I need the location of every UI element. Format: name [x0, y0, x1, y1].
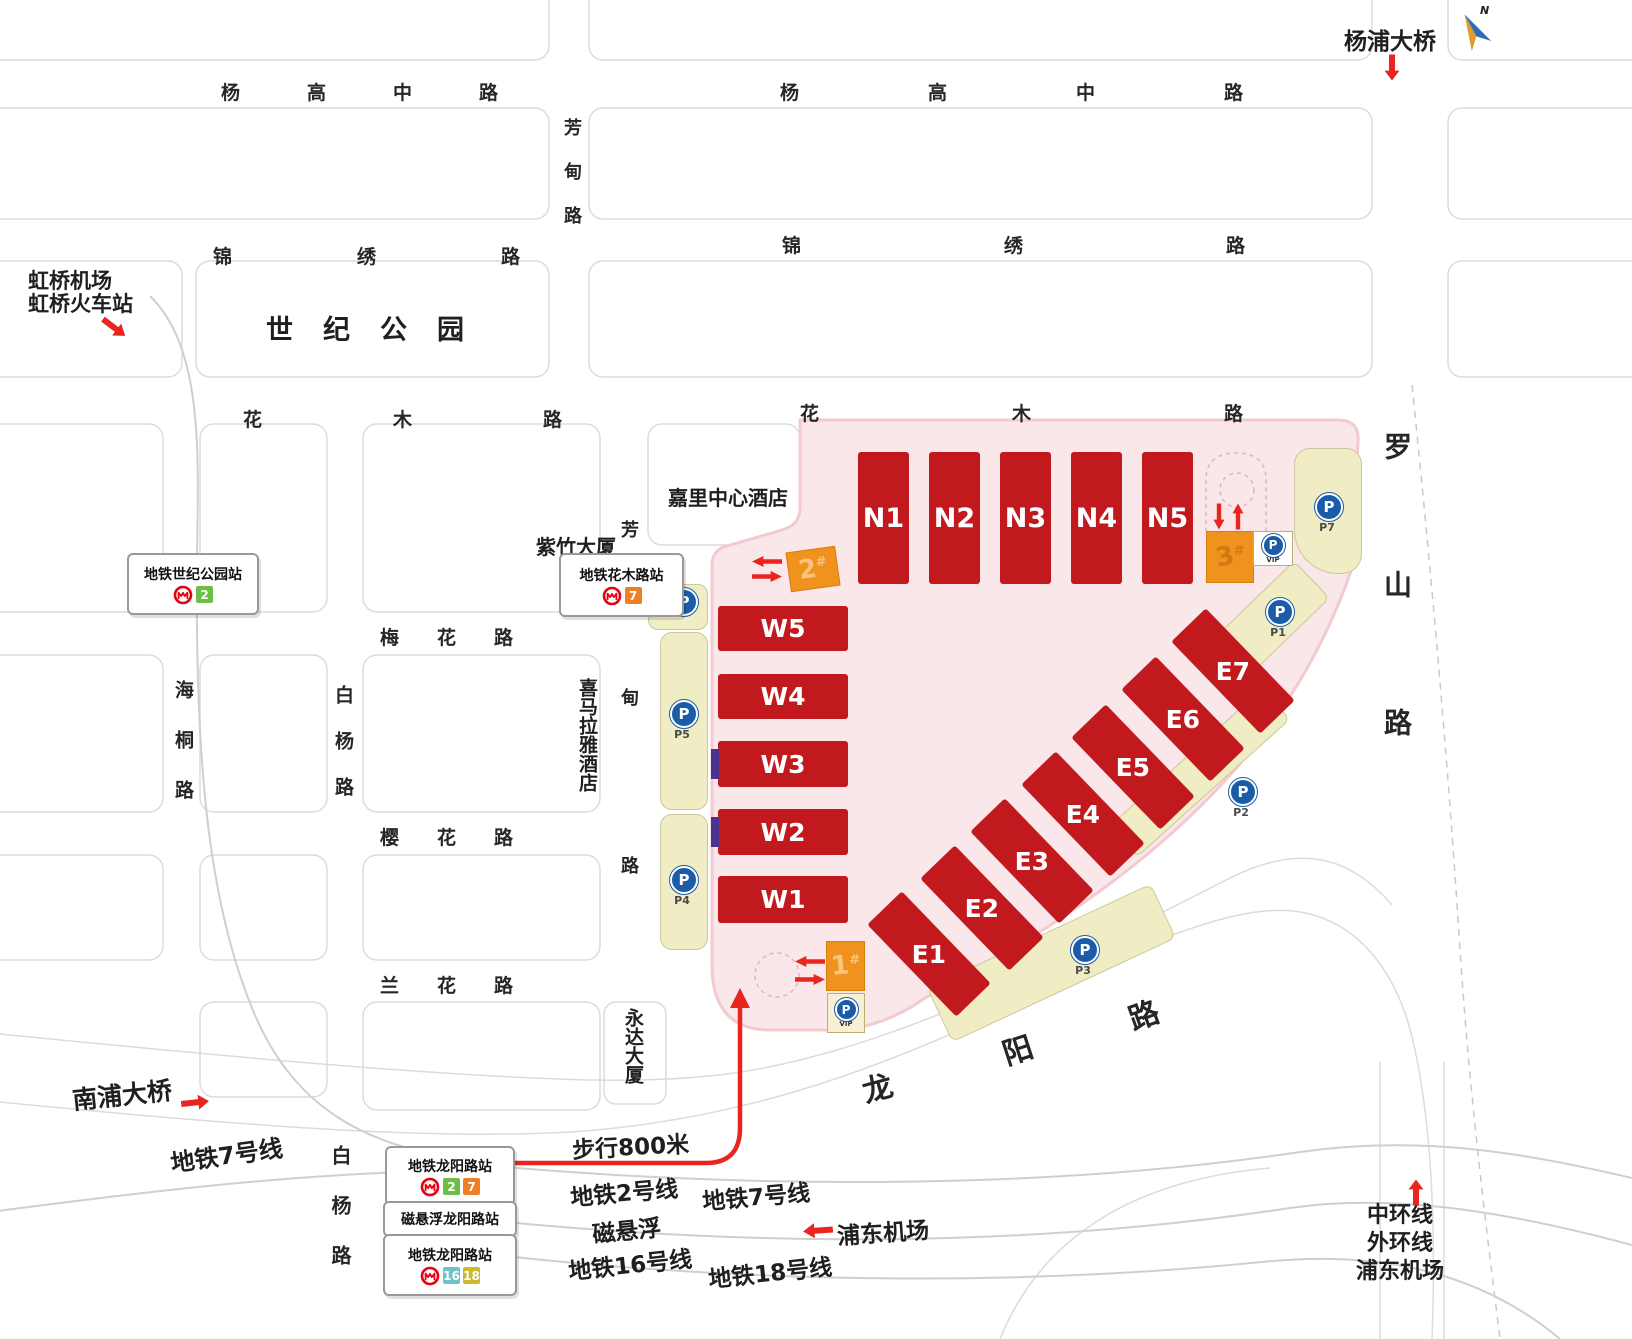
parking-label-p1: P1: [1258, 626, 1298, 639]
gate-2-hash: #: [815, 554, 828, 570]
hall-w1-label: W1: [761, 885, 806, 914]
hall-w3-entrance-tab: [711, 749, 719, 779]
station-longyang-27-name: 地铁龙阳路站: [408, 1156, 492, 1176]
parking-label-p5: P5: [662, 728, 702, 741]
road-meihua: 梅花路: [380, 623, 551, 650]
hall-e3-label: E3: [1015, 846, 1049, 875]
century-park-label: 世纪公园: [266, 308, 494, 347]
station-longyang-metro-1618: 地铁龙阳路站 16 18: [383, 1234, 517, 1296]
station-huamu: 地铁花木路站 7: [559, 553, 684, 617]
himalaya-hotel-label: 喜马拉雅酒店: [574, 678, 601, 792]
line-2-badge: 2: [443, 1178, 460, 1195]
walk-800m-label: 步行800米: [571, 1125, 690, 1165]
hall-w5: W5: [718, 606, 848, 651]
hall-w3: W3: [718, 741, 848, 787]
hall-w2: W2: [718, 809, 848, 855]
sniec-access-map: N1 N2 N3 N4 N5 W5 W4 W3 W2 W1 E1 E2 E3 E…: [0, 0, 1632, 1339]
hall-e4-label: E4: [1066, 799, 1100, 828]
middle-ring-label: 中环线: [1338, 1202, 1462, 1230]
road-haitong: 海桐路: [170, 680, 197, 830]
hall-w2-label: W2: [761, 818, 806, 847]
compass-n-label: N: [1480, 4, 1489, 17]
line-18-badge: 18: [463, 1267, 480, 1284]
hall-e1-label: E1: [912, 939, 946, 968]
hongqiao-airport-label: 虹桥机场 虹桥火车站: [28, 270, 133, 316]
pudong-airport-west-label: 浦东机场: [836, 1211, 930, 1251]
parking-label-p7: P7: [1307, 521, 1347, 534]
gate-3-hash: #: [1234, 544, 1245, 559]
station-longyang-1618-name: 地铁龙阳路站: [408, 1245, 492, 1265]
hall-n3: N3: [1000, 452, 1051, 584]
vip-parking-gate1: P VIP: [827, 993, 865, 1033]
hongqiao-line2: 虹桥火车站: [28, 293, 133, 316]
parking-icon-p5: P: [670, 700, 698, 728]
hall-n3-label: N3: [1005, 503, 1046, 534]
gate-1: 1#: [826, 941, 865, 991]
shanghai-metro-logo-icon: [602, 586, 622, 606]
station-longyang-maglev-name: 磁悬浮龙阳路站: [401, 1209, 499, 1229]
parking-icon-p3: P: [1071, 936, 1099, 964]
hall-n4: N4: [1071, 452, 1122, 584]
hall-n5-label: N5: [1147, 503, 1188, 534]
parking-icon-p4: P: [670, 866, 698, 894]
hall-e5-label: E5: [1116, 752, 1150, 781]
gate-3: 3#: [1206, 531, 1254, 583]
road-yanggao-left: 杨高中路: [221, 78, 565, 105]
road-baiyang-bottom: 白杨路: [326, 1145, 355, 1295]
hongqiao-line1: 虹桥机场: [28, 270, 133, 293]
hall-w4: W4: [718, 674, 848, 719]
line-7-badge: 7: [625, 587, 642, 604]
hall-e6-label: E6: [1166, 704, 1200, 733]
hall-w1: W1: [718, 876, 848, 923]
hall-w5-label: W5: [761, 614, 806, 643]
station-century-park-name: 地铁世纪公园站: [144, 564, 242, 584]
hall-e7-label: E7: [1216, 656, 1250, 685]
luoshan-road-line: [1412, 385, 1500, 1339]
parking-label-p3: P3: [1063, 964, 1103, 977]
pudong-airport-south-label: 浦东机场: [1338, 1258, 1462, 1286]
line-2-badge: 2: [196, 586, 213, 603]
station-century-park: 地铁世纪公园站 2: [127, 553, 259, 615]
shanghai-metro-logo-icon: [420, 1177, 440, 1197]
gate-1-label: 1: [830, 950, 851, 981]
gate-1-hash: #: [849, 953, 860, 968]
road-huamu-right: 花木路: [800, 399, 1436, 426]
yangpu-bridge-label: 杨浦大桥: [1344, 22, 1436, 56]
vip-parking-gate3: P VIP: [1253, 531, 1293, 566]
vip-label: VIP: [1266, 557, 1279, 564]
road-baiyang-mid: 白杨路: [330, 685, 357, 823]
road-huamu-left: 花木路: [243, 405, 693, 432]
station-huamu-name: 地铁花木路站: [580, 565, 664, 585]
kerry-hotel-label: 嘉里中心酒店: [668, 482, 788, 511]
road-yanggao-right: 杨高中路: [780, 78, 1372, 105]
parking-icon-p1: P: [1266, 598, 1294, 626]
road-yinghua: 樱花路: [380, 823, 551, 850]
road-fangdian-top: 芳甸路: [558, 118, 584, 250]
hall-n4-label: N4: [1076, 503, 1117, 534]
hall-n5: N5: [1142, 452, 1193, 584]
hall-n1-label: N1: [863, 503, 904, 534]
parking-icon: P: [835, 998, 858, 1021]
shanghai-metro-logo-icon: [173, 585, 193, 605]
hall-n2: N2: [929, 452, 980, 584]
road-lanhua: 兰花路: [380, 971, 551, 998]
hall-w4-label: W4: [761, 682, 806, 711]
road-jinxiu-right: 锦绣路: [782, 231, 1448, 258]
parking-label-p2: P2: [1221, 806, 1261, 819]
yongda-tower-label: 永达大厦: [620, 1008, 647, 1084]
ring-roads-label: 中环线 外环线 浦东机场: [1338, 1202, 1462, 1286]
station-longyang-metro-27: 地铁龙阳路站 2 7: [385, 1146, 515, 1206]
hall-w2-entrance-tab: [711, 817, 719, 847]
shanghai-metro-logo-icon: [420, 1266, 440, 1286]
hall-n1: N1: [858, 452, 909, 584]
compass-icon: N: [1452, 2, 1496, 58]
line-7-badge: 7: [463, 1178, 480, 1195]
parking-icon-p2: P: [1229, 778, 1257, 806]
outer-ring-label: 外环线: [1338, 1230, 1462, 1258]
road-luoshan: 罗山路: [1376, 432, 1416, 846]
parking-label-p4: P4: [662, 894, 702, 907]
hall-n2-label: N2: [934, 503, 975, 534]
hall-e2-label: E2: [965, 893, 999, 922]
parking-icon-p7: P: [1315, 493, 1343, 521]
hall-w3-label: W3: [761, 750, 806, 779]
gate-2: 2#: [785, 546, 840, 593]
station-longyang-maglev: 磁悬浮龙阳路站: [383, 1201, 517, 1237]
parking-icon: P: [1262, 534, 1285, 557]
line-16-badge: 16: [443, 1267, 460, 1284]
vip-label: VIP: [839, 1021, 852, 1028]
